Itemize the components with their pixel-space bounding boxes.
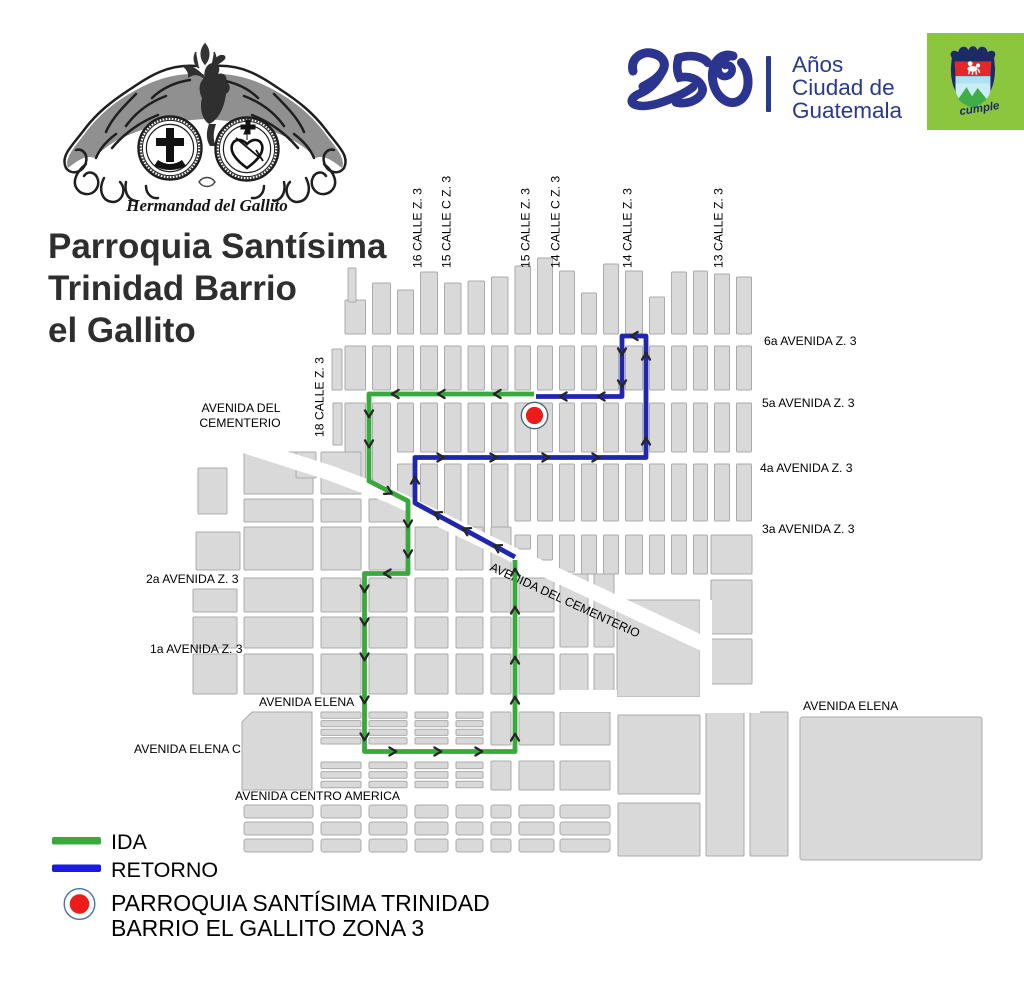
svg-text:Años: Años [792, 52, 843, 77]
svg-text:AVENIDA ELENA: AVENIDA ELENA [803, 699, 899, 713]
svg-text:14 CALLE C Z. 3: 14 CALLE C Z. 3 [549, 176, 563, 268]
svg-text:5a AVENIDA Z. 3: 5a AVENIDA Z. 3 [762, 396, 855, 410]
svg-text:15 CALLE C Z. 3: 15 CALLE C Z. 3 [440, 176, 454, 268]
svg-text:AVENIDA CENTRO AMERICA: AVENIDA CENTRO AMERICA [235, 789, 401, 803]
svg-text:2a AVENIDA Z. 3: 2a AVENIDA Z. 3 [146, 572, 239, 586]
svg-text:16 CALLE Z. 3: 16 CALLE Z. 3 [411, 188, 425, 268]
svg-text:RETORNO: RETORNO [111, 858, 218, 882]
svg-text:4a AVENIDA Z. 3: 4a AVENIDA Z. 3 [760, 461, 853, 475]
svg-text:AVENIDA DEL: AVENIDA DEL [201, 401, 280, 415]
svg-text:AVENIDA ELENA: AVENIDA ELENA [259, 695, 355, 709]
svg-text:Trinidad Barrio: Trinidad Barrio [48, 269, 297, 308]
svg-text:15 CALLE Z. 3: 15 CALLE Z. 3 [519, 188, 533, 268]
svg-text:BARRIO EL GALLITO ZONA 3: BARRIO EL GALLITO ZONA 3 [111, 915, 424, 941]
svg-text:3a AVENIDA Z. 3: 3a AVENIDA Z. 3 [762, 522, 855, 536]
svg-text:18 CALLE Z. 3: 18 CALLE Z. 3 [313, 357, 327, 437]
svg-text:Hermandad del Gallito: Hermandad del Gallito [125, 196, 288, 215]
svg-text:Parroquia Santísima: Parroquia Santísima [48, 227, 387, 266]
svg-text:1a AVENIDA Z. 3: 1a AVENIDA Z. 3 [150, 642, 243, 656]
svg-text:13 CALLE Z. 3: 13 CALLE Z. 3 [712, 188, 726, 268]
svg-text:14 CALLE Z. 3: 14 CALLE Z. 3 [621, 188, 635, 268]
svg-text:PARROQUIA SANTÍSIMA TRINIDAD: PARROQUIA SANTÍSIMA TRINIDAD [111, 890, 490, 916]
svg-text:6a AVENIDA Z. 3: 6a AVENIDA Z. 3 [764, 334, 857, 348]
svg-text:el Gallito: el Gallito [48, 311, 196, 350]
svg-text:Guatemala: Guatemala [792, 98, 903, 123]
svg-text:Ciudad de: Ciudad de [792, 75, 895, 100]
svg-text:AVENIDA ELENA C: AVENIDA ELENA C [134, 742, 241, 756]
svg-text:IDA: IDA [111, 830, 148, 854]
svg-text:CEMENTERIO: CEMENTERIO [199, 416, 280, 430]
